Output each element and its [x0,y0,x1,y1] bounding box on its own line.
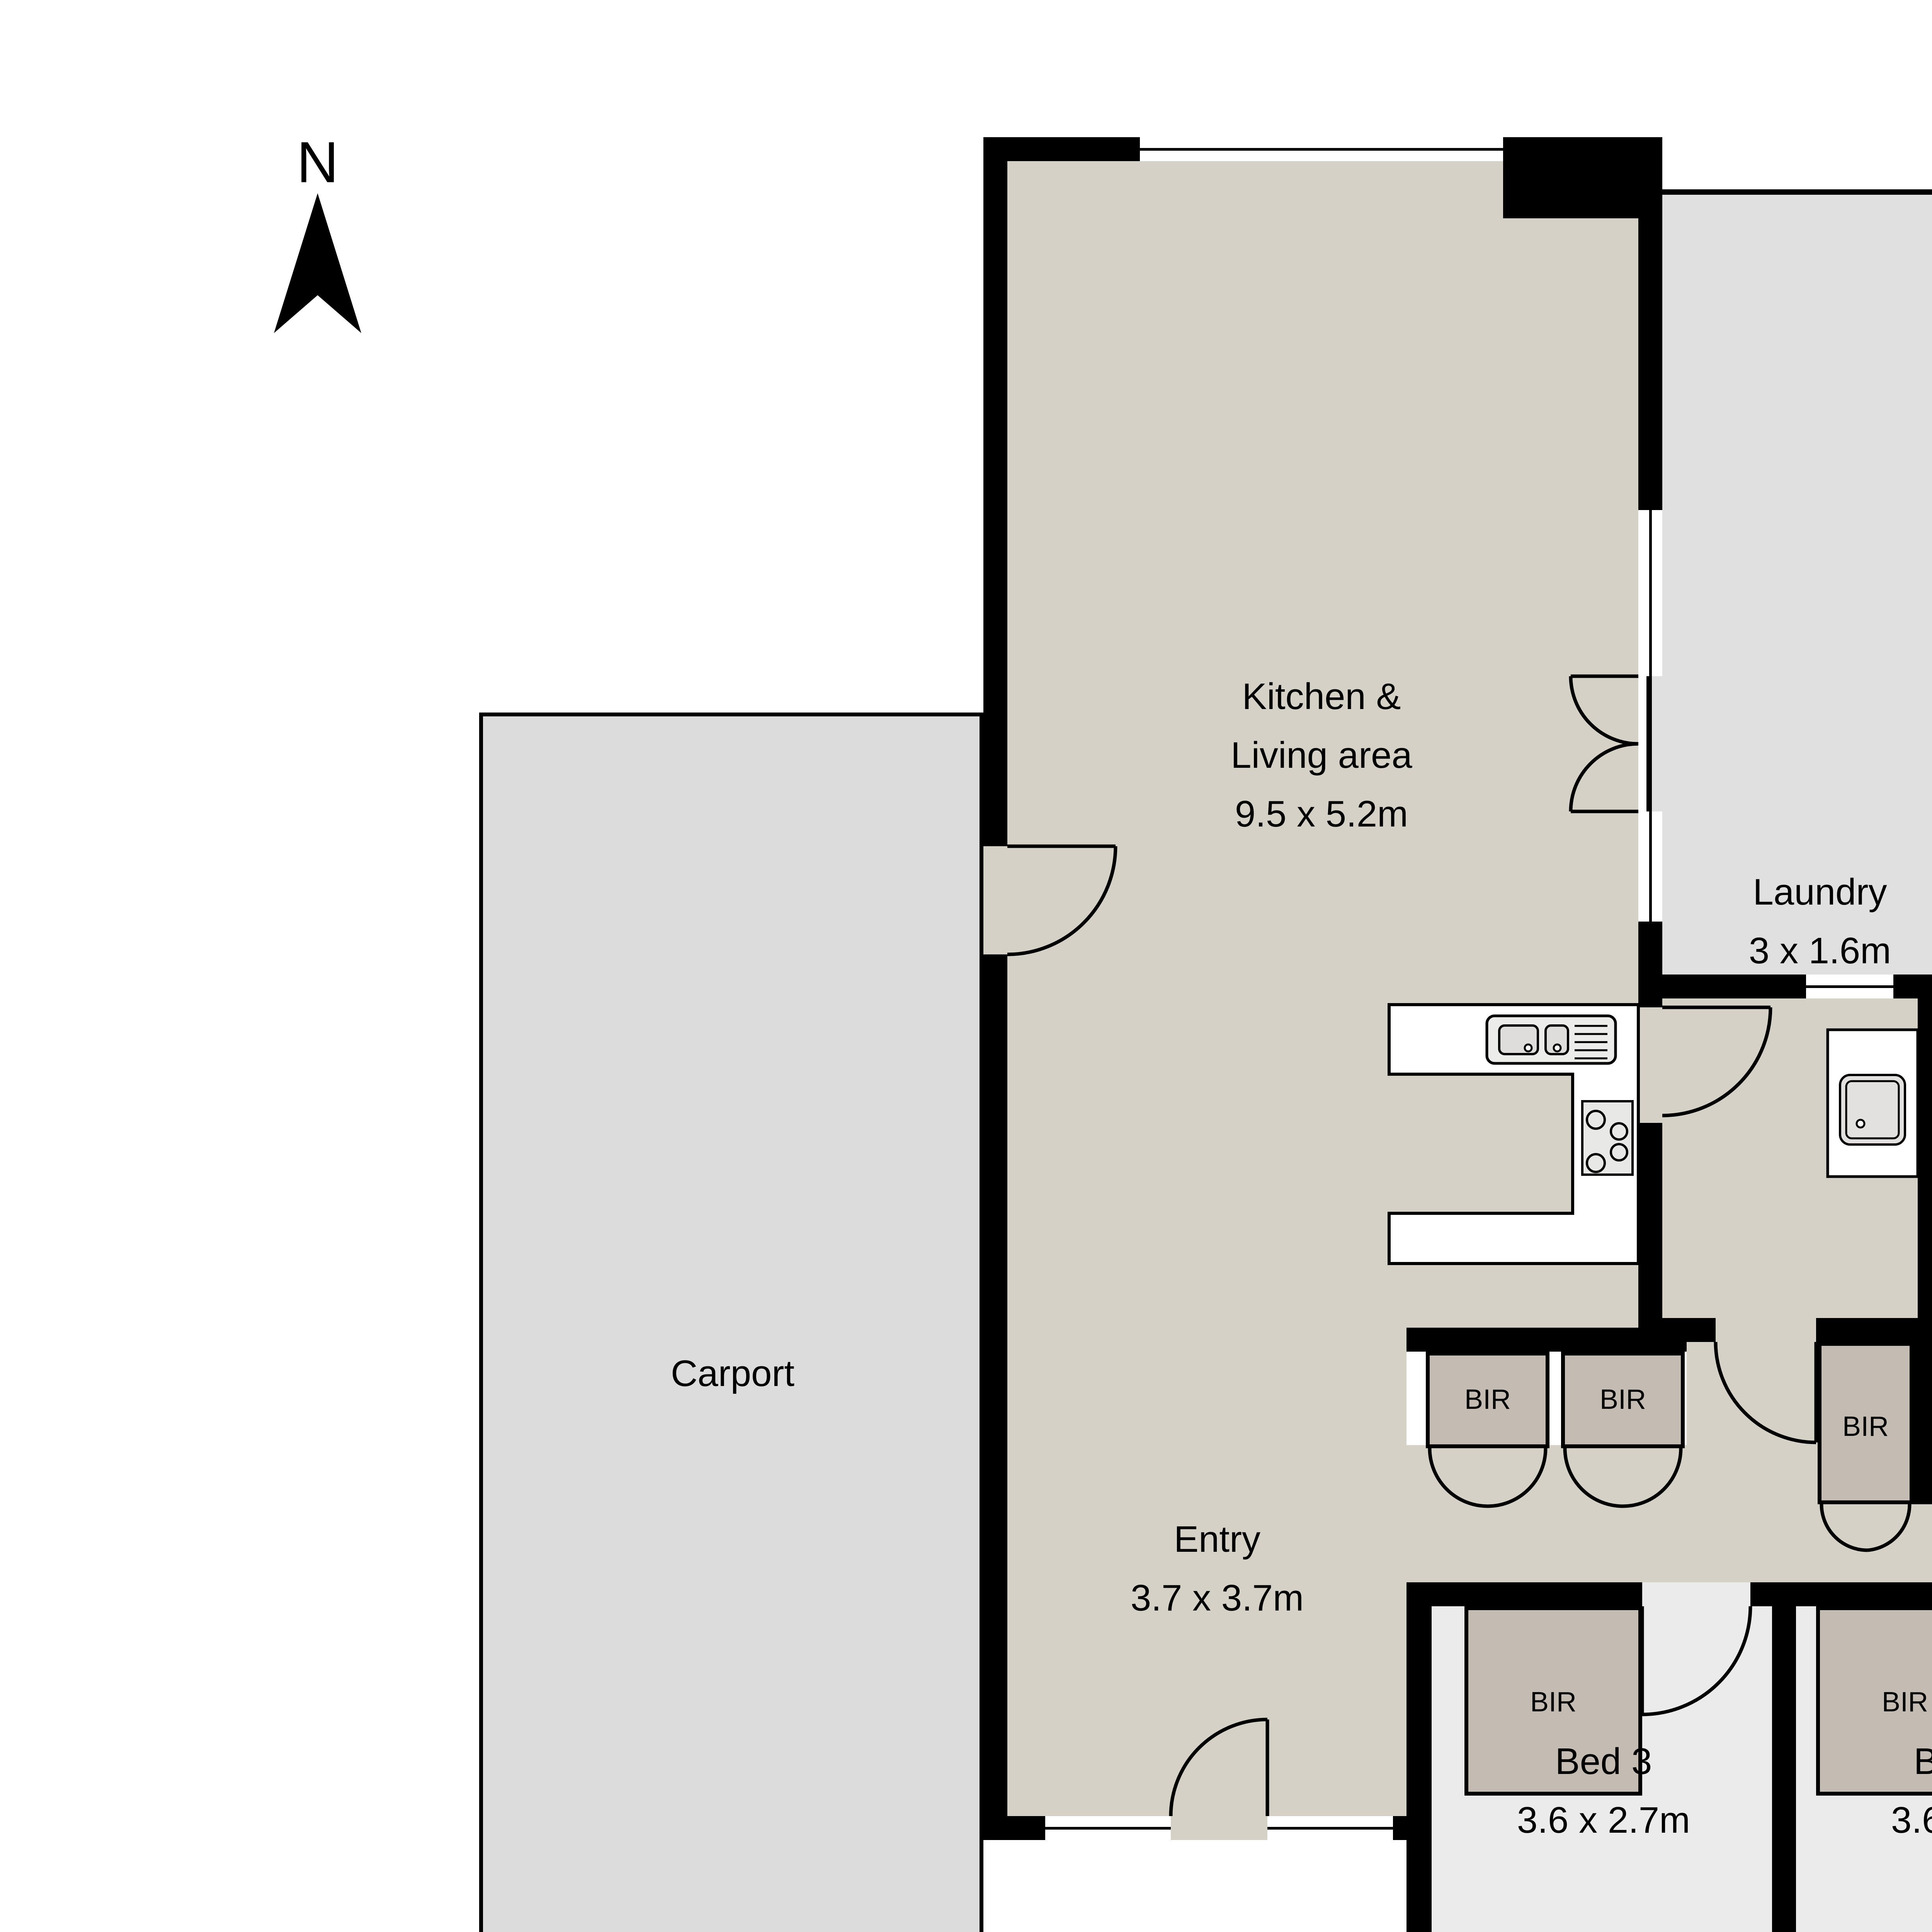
door-arc-corridor [1716,1342,1816,1442]
cooktop [1582,1101,1633,1175]
entry-name: Entry [1131,1510,1304,1569]
bir-label: BIR [1464,1384,1511,1415]
laundry-label: Laundry 3 x 1.6m [1749,863,1891,980]
kitchen-sink [1487,1016,1616,1063]
laundry-name: Laundry [1749,863,1891,922]
door-arc-laundry [1662,1007,1770,1116]
north-arrow-icon [274,193,361,333]
door-arc-bir-pair1 [1430,1448,1681,1506]
kitchen-dims: 9.5 x 5.2m [1231,785,1412,844]
bed2-label: Bed 2 3.6 x 3m [1891,1732,1932,1850]
bed3-label: Bed 3 3.6 x 2.7m [1517,1732,1690,1850]
bed3-dims: 3.6 x 2.7m [1517,1791,1690,1850]
bir-label: BIR [1882,1686,1928,1718]
laundry-tub [1828,1030,1918,1177]
carport-label: Carport [671,1344,794,1403]
door-arc-bir-pair2 [1821,1504,1932,1550]
kitchen-label: Kitchen & Living area 9.5 x 5.2m [1231,667,1412,844]
floor-plan: N Kitchen & Living area 9.5 x 5.2m Patio… [0,0,1932,1932]
bir-label: BIR [1600,1384,1646,1415]
door-arc-kitchen-patio-french [1571,676,1638,811]
laundry-dims: 3 x 1.6m [1749,922,1891,980]
north-label: N [297,129,338,196]
bir-label: BIR [1530,1686,1577,1718]
door-arc-carport-kitchen [1007,846,1116,954]
bed3-name: Bed 3 [1517,1732,1690,1791]
door-arc-bed3 [1642,1606,1750,1714]
entry-dims: 3.7 x 3.7m [1131,1569,1304,1628]
bir-label: BIR [1842,1411,1889,1442]
kitchen-name-line1: Kitchen & [1231,667,1412,726]
kitchen-name-line2: Living area [1231,726,1412,785]
bed2-name: Bed 2 [1891,1732,1932,1791]
bed2-dims: 3.6 x 3m [1891,1791,1932,1850]
entry-label: Entry 3.7 x 3.7m [1131,1510,1304,1628]
carport-name: Carport [671,1344,794,1403]
door-arc-entry [1171,1719,1267,1816]
symbols-layer [0,0,1932,1932]
